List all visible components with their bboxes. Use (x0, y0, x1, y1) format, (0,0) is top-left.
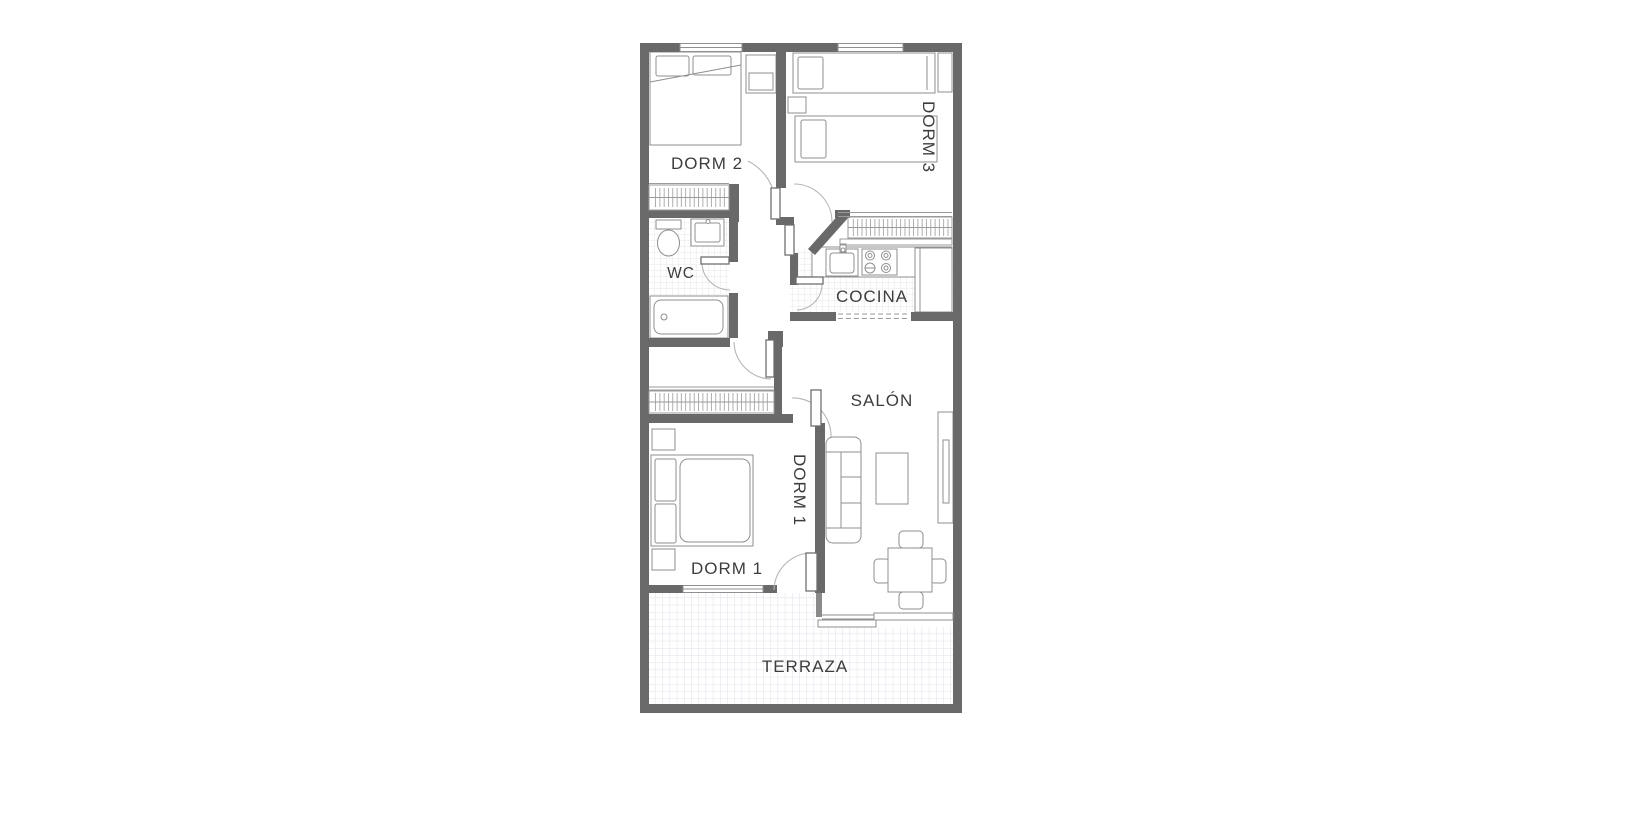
kitchen-door (796, 277, 823, 284)
floor-plan-page: DORM 2 DORM 3 WC COCINA SALÓN DORM 1 DOR… (0, 0, 1638, 840)
toilet-bowl (658, 230, 680, 256)
terraza-label: TERRAZA (762, 657, 848, 676)
kitchen-hob (862, 249, 897, 275)
dorm1-label: DORM 1 (691, 559, 763, 578)
salon-furniture (826, 412, 953, 609)
dorm2-door (771, 188, 780, 219)
dining-table (888, 548, 932, 592)
dorm1-pillow-bottom (655, 504, 676, 543)
hall-closet-door (766, 340, 774, 377)
dorm2-dorm3-divider (776, 52, 786, 188)
bathtub-drain (661, 314, 667, 320)
dorm2-pillow-right (693, 56, 731, 75)
dorm3-label: DORM 3 (919, 101, 938, 173)
dorm2-nightstand-drawer (749, 73, 773, 90)
dorm1-blanket (680, 459, 750, 542)
left-wall (640, 43, 649, 713)
coffee-table (876, 453, 908, 504)
wc-sink-faucet (706, 220, 710, 224)
dorm1-nightstand-top (652, 429, 675, 450)
dorm2-label: DORM 2 (671, 154, 743, 173)
sofa (826, 437, 861, 543)
wc-label: WC (667, 265, 695, 282)
terrace-mullion (816, 593, 822, 617)
wc-bottom-wall (640, 338, 730, 347)
floor-plan-drawing: DORM 2 DORM 3 WC COCINA SALÓN DORM 1 DOR… (0, 0, 1638, 840)
dorm1-pillow-top (655, 459, 676, 501)
dorm3-bed-2-pillow (801, 120, 826, 158)
dining-chair-bottom (899, 592, 923, 609)
closet-back-wall (840, 239, 952, 245)
dorm1-furniture (651, 429, 753, 570)
dorm3-nightstand (788, 97, 806, 113)
dining-chair-top (899, 531, 923, 548)
terrace-floor-left (649, 593, 816, 704)
terrace-sliding-door-leaf (818, 620, 876, 627)
cocina-label: COCINA (836, 287, 908, 306)
dorm2-pillow-left (656, 56, 689, 76)
terrace-sliding-door-fixed (874, 613, 953, 620)
kitchen-sink-basin (830, 253, 854, 273)
dorm3-bed-1-pillow (798, 57, 823, 89)
wc-door (701, 257, 729, 264)
toilet-tank (656, 220, 681, 229)
right-wall (953, 43, 962, 713)
dorm1-terrace-door (806, 553, 817, 591)
dorm3-door (785, 225, 794, 255)
dorm1-door (811, 390, 821, 426)
wc-sink-basin (695, 223, 720, 242)
kitchen-fridge-column (915, 248, 952, 312)
dorm1-vertical-label: DORM 1 (790, 454, 809, 526)
dorm1-nightstand-bottom (652, 549, 675, 570)
dorm3-shelf (938, 53, 952, 92)
tv (943, 440, 949, 503)
wc-top-wall (640, 210, 730, 218)
dorm1-top-wall (640, 414, 793, 423)
bottom-wall (640, 704, 962, 713)
kitchen-faucet-knob (841, 248, 845, 252)
salon-label: SALÓN (851, 391, 914, 410)
dorm2-furniture (650, 52, 776, 145)
